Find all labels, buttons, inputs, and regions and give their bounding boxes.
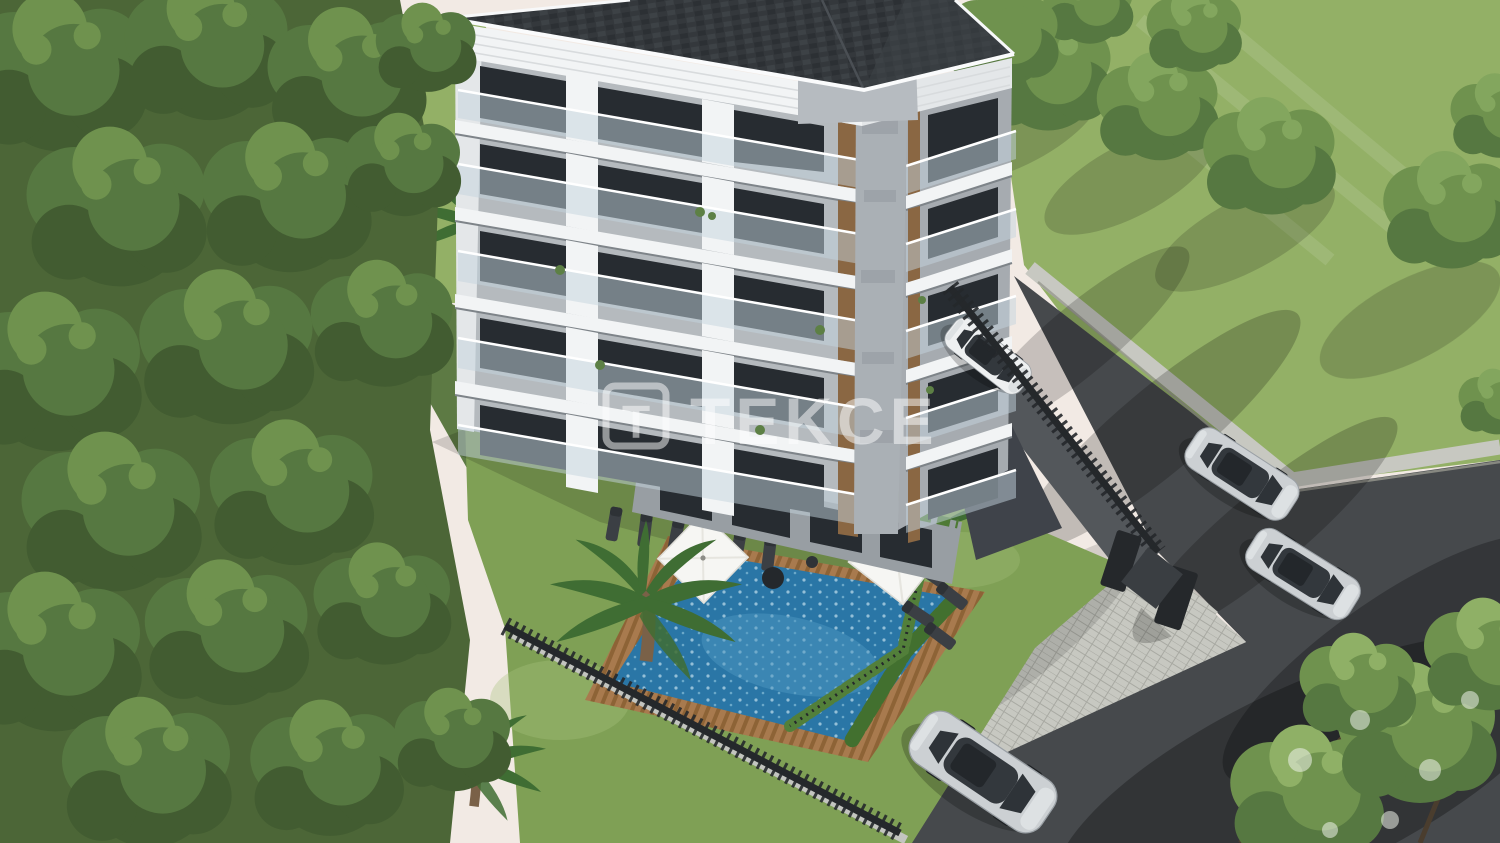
side-table — [806, 556, 818, 568]
architectural-render: T TEKCE — [0, 0, 1500, 843]
tree — [125, 0, 289, 120]
watermark-brand-text: TEKCE — [690, 384, 939, 458]
tree — [0, 0, 147, 151]
render-viewport: T TEKCE — [0, 0, 1500, 843]
watermark-logo-letter: T — [622, 396, 650, 448]
tree — [1147, 0, 1242, 72]
round-daybed — [762, 567, 784, 589]
